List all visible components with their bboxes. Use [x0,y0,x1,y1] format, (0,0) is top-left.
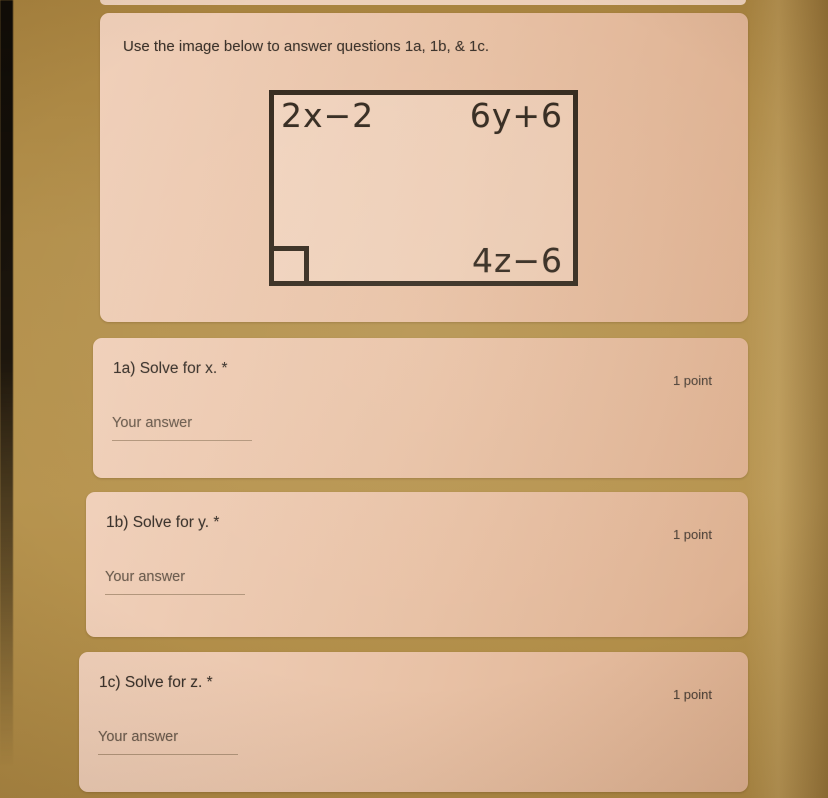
answer-input-1b[interactable] [105,564,245,595]
question-title: 1b) Solve for y. * [106,514,219,532]
figure-label-top-left: 2x−2 [281,98,374,134]
form-page: Use the image below to answer questions … [0,0,828,798]
previous-card-bottom-edge [100,0,746,5]
points-badge: 1 point [673,687,712,702]
question-title: 1a) Solve for x. * [113,360,228,378]
instruction-text: Use the image below to answer questions … [123,38,489,55]
question-card-1a: 1a) Solve for x. * 1 point [93,338,748,478]
intro-card: Use the image below to answer questions … [100,13,748,322]
answer-input-1c[interactable] [98,724,238,755]
right-angle-icon [274,246,309,281]
answer-input-1a[interactable] [112,410,252,441]
question-title: 1c) Solve for z. * [99,674,213,692]
figure-label-bottom-right: 4z−6 [472,243,563,279]
question-card-1c: 1c) Solve for z. * 1 point [79,652,748,792]
points-badge: 1 point [673,527,712,542]
question-card-1b: 1b) Solve for y. * 1 point [86,492,748,637]
points-badge: 1 point [673,373,712,388]
photo-dark-edge [0,0,13,798]
figure-label-top-right: 6y+6 [470,98,563,134]
rectangle-figure: 2x−2 6y+6 4z−6 [269,90,578,286]
